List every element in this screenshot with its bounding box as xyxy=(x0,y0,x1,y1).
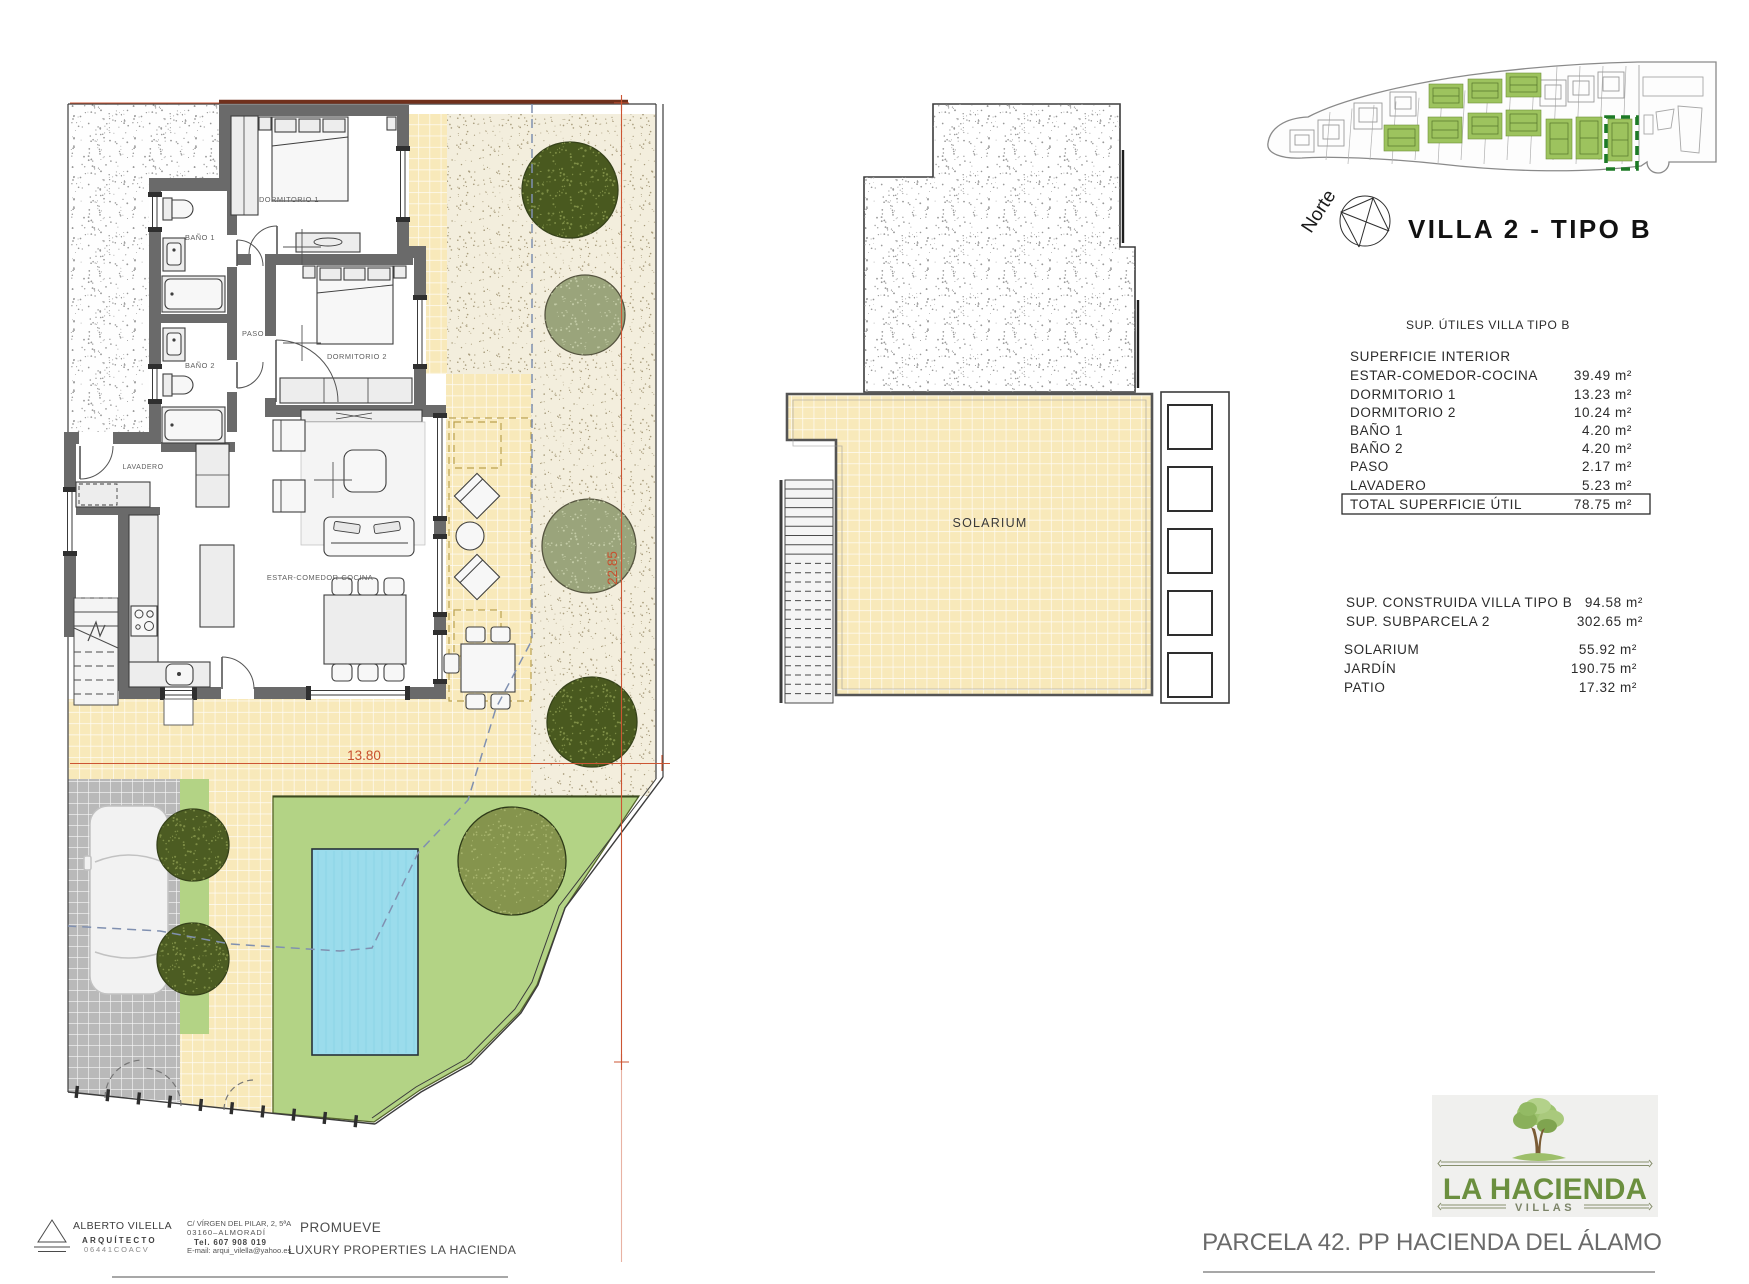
svg-text:DORMITORIO 1: DORMITORIO 1 xyxy=(259,195,319,204)
svg-text:17.32 m²: 17.32 m² xyxy=(1579,680,1637,695)
svg-text:SOLARIUM: SOLARIUM xyxy=(953,516,1028,530)
svg-text:SUP. ÚTILES VILLA TIPO B: SUP. ÚTILES VILLA TIPO B xyxy=(1406,317,1570,332)
svg-text:VILLA 2 - TIPO B: VILLA 2 - TIPO B xyxy=(1408,214,1652,244)
svg-text:SUP. CONSTRUIDA VILLA TIPO B: SUP. CONSTRUIDA VILLA TIPO B xyxy=(1346,595,1572,610)
svg-text:ALBERTO VILELLA: ALBERTO VILELLA xyxy=(73,1220,172,1232)
svg-text:SOLARIUM: SOLARIUM xyxy=(1344,642,1419,657)
svg-text:39.49 m²: 39.49 m² xyxy=(1574,368,1632,383)
svg-text:TOTAL SUPERFICIE ÚTIL: TOTAL SUPERFICIE ÚTIL xyxy=(1350,497,1522,512)
svg-text:DORMITORIO 2: DORMITORIO 2 xyxy=(327,352,387,361)
svg-text:190.75 m²: 190.75 m² xyxy=(1571,661,1637,676)
svg-text:BAÑO 1: BAÑO 1 xyxy=(185,233,215,242)
svg-text:PATIO: PATIO xyxy=(1344,680,1386,695)
svg-text:C/ VÍRGEN DEL PILAR, 2, 5ªA: C/ VÍRGEN DEL PILAR, 2, 5ªA xyxy=(187,1219,292,1228)
svg-text:BAÑO 2: BAÑO 2 xyxy=(1350,441,1403,456)
svg-text:LUXURY PROPERTIES LA HACIENDA: LUXURY PROPERTIES LA HACIENDA xyxy=(288,1243,517,1257)
svg-text:55.92 m²: 55.92 m² xyxy=(1579,642,1637,657)
svg-text:PROMUEVE: PROMUEVE xyxy=(300,1220,381,1235)
svg-text:4.20 m²: 4.20 m² xyxy=(1582,441,1632,456)
svg-text:22.85: 22.85 xyxy=(605,551,620,585)
svg-text:BAÑO 2: BAÑO 2 xyxy=(185,361,215,370)
svg-text:03160–ALMORADÍ: 03160–ALMORADÍ xyxy=(187,1228,266,1237)
svg-text:ARQUÍTECTO: ARQUÍTECTO xyxy=(82,1236,157,1245)
svg-text:SUP. SUBPARCELA 2: SUP. SUBPARCELA 2 xyxy=(1346,614,1490,629)
svg-text:10.24 m²: 10.24 m² xyxy=(1574,405,1632,420)
svg-text:78.75 m²: 78.75 m² xyxy=(1574,497,1632,512)
svg-text:PARCELA 42. PP HACIENDA DEL ÁL: PARCELA 42. PP HACIENDA DEL ÁLAMO xyxy=(1202,1229,1662,1256)
svg-text:DORMITORIO 1: DORMITORIO 1 xyxy=(1350,387,1456,402)
svg-text:302.65 m²: 302.65 m² xyxy=(1577,614,1643,629)
svg-text:13.80: 13.80 xyxy=(347,748,381,763)
svg-text:VILLAS: VILLAS xyxy=(1515,1202,1575,1214)
svg-text:E-mail: arqui_vilella@yahoo.es: E-mail: arqui_vilella@yahoo.es xyxy=(187,1246,292,1255)
svg-text:06441COACV: 06441COACV xyxy=(84,1245,150,1254)
svg-text:ESTAR-COMEDOR-COCINA: ESTAR-COMEDOR-COCINA xyxy=(1350,368,1538,383)
svg-text:5.23 m²: 5.23 m² xyxy=(1582,478,1632,493)
svg-text:4.20 m²: 4.20 m² xyxy=(1582,423,1632,438)
svg-text:LAVADERO: LAVADERO xyxy=(1350,478,1426,493)
svg-text:2.17 m²: 2.17 m² xyxy=(1582,459,1632,474)
svg-text:DORMITORIO 2: DORMITORIO 2 xyxy=(1350,405,1456,420)
svg-text:LAVADERO: LAVADERO xyxy=(122,464,163,471)
svg-text:ESTAR-COMEDOR-COCINA: ESTAR-COMEDOR-COCINA xyxy=(267,573,373,582)
svg-text:SUPERFICIE INTERIOR: SUPERFICIE INTERIOR xyxy=(1350,349,1511,364)
svg-text:JARDÍN: JARDÍN xyxy=(1344,661,1396,676)
svg-text:BAÑO 1: BAÑO 1 xyxy=(1350,423,1403,438)
svg-text:PASO: PASO xyxy=(242,329,264,338)
svg-text:13.23 m²: 13.23 m² xyxy=(1574,387,1632,402)
svg-text:94.58 m²: 94.58 m² xyxy=(1585,595,1643,610)
svg-text:PASO: PASO xyxy=(1350,459,1389,474)
